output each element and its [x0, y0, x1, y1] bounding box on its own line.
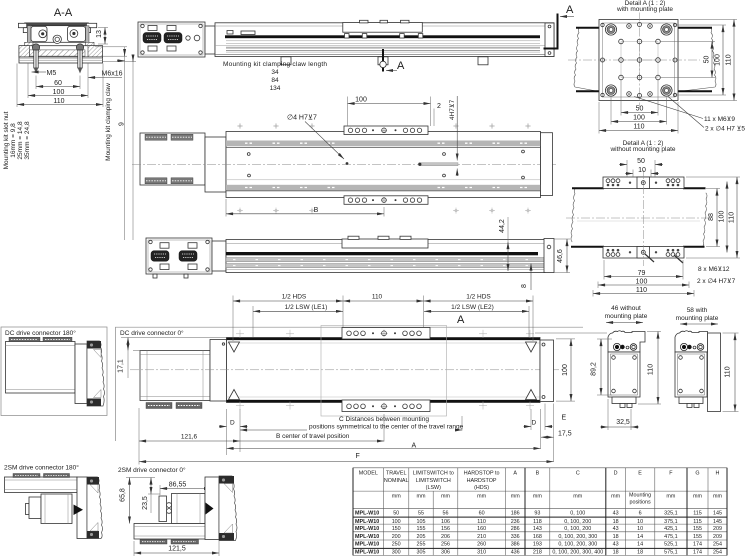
svg-text:110: 110 [477, 519, 486, 525]
svg-text:Mounting kit slot nut: Mounting kit slot nut [3, 111, 10, 169]
svg-text:43: 43 [613, 526, 619, 532]
svg-text:100: 100 [53, 89, 65, 96]
svg-text:55: 55 [418, 511, 424, 517]
svg-text:A: A [412, 442, 417, 449]
svg-text:M6x16: M6x16 [102, 71, 123, 78]
svg-text:8: 8 [521, 284, 528, 288]
svg-text:10: 10 [637, 526, 643, 532]
svg-text:NOMINAL: NOMINAL [384, 478, 409, 484]
svg-text:110: 110 [726, 54, 733, 65]
svg-text:17,5: 17,5 [558, 431, 572, 438]
svg-text:B: B [536, 471, 540, 477]
svg-text:210: 210 [477, 534, 486, 540]
svg-text:50: 50 [393, 511, 399, 517]
svg-text:525,1: 525,1 [664, 542, 678, 548]
svg-text:209: 209 [713, 526, 722, 532]
svg-text:LIMITSWITCH: LIMITSWITCH [416, 478, 451, 484]
svg-text:mm: mm [511, 493, 520, 499]
svg-text:121,6: 121,6 [181, 433, 198, 440]
svg-text:310: 310 [477, 549, 486, 555]
svg-text:250: 250 [392, 542, 401, 548]
svg-text:D: D [532, 420, 537, 427]
svg-text:50: 50 [636, 106, 644, 113]
svg-text:MPL-W10: MPL-W10 [355, 542, 379, 548]
svg-text:110: 110 [53, 98, 64, 105]
svg-text:150: 150 [392, 526, 401, 532]
svg-text:110: 110 [372, 294, 383, 301]
svg-text:B: B [314, 207, 319, 214]
svg-text:155: 155 [693, 534, 702, 540]
svg-text:0, 100, 200, 300: 0, 100, 200, 300 [558, 534, 597, 540]
svg-text:A: A [457, 314, 465, 326]
svg-text:100: 100 [633, 115, 645, 122]
svg-text:160: 160 [477, 526, 486, 532]
svg-text:MPL-W10: MPL-W10 [355, 534, 379, 540]
svg-text:43: 43 [613, 511, 619, 517]
svg-text:254: 254 [713, 542, 722, 548]
svg-text:C Distances between mountin: C Distances between mounting [339, 416, 429, 423]
svg-text:89,2: 89,2 [591, 362, 598, 376]
svg-text:106: 106 [441, 519, 450, 525]
svg-text:HARDSTOP: HARDSTOP [467, 478, 497, 484]
svg-text:155: 155 [693, 526, 702, 532]
svg-text:168: 168 [533, 534, 542, 540]
svg-text:(HDS): (HDS) [474, 485, 489, 491]
svg-text:1/2 HDS: 1/2 HDS [282, 294, 307, 301]
svg-text:174: 174 [693, 549, 702, 555]
svg-text:0, 100: 0, 100 [570, 511, 585, 517]
svg-text:positions: positions [629, 500, 651, 506]
svg-text:100: 100 [715, 54, 722, 66]
svg-text:100: 100 [355, 97, 367, 104]
svg-text:M5: M5 [47, 70, 57, 77]
svg-text:43: 43 [613, 542, 619, 548]
svg-text:D: D [230, 420, 235, 427]
svg-text:306: 306 [441, 549, 450, 555]
svg-text:115: 115 [693, 519, 702, 525]
svg-text:mm: mm [573, 493, 582, 499]
svg-text:16mm = 9,8: 16mm = 9,8 [10, 123, 17, 158]
svg-text:186: 186 [511, 511, 520, 517]
svg-text:436: 436 [511, 549, 520, 555]
svg-text:100: 100 [392, 519, 401, 525]
svg-text:13: 13 [96, 30, 103, 38]
svg-text:156: 156 [441, 526, 450, 532]
svg-text:336: 336 [511, 534, 520, 540]
svg-text:255: 255 [417, 542, 426, 548]
svg-text:HARDSTOP to: HARDSTOP to [464, 471, 500, 477]
svg-text:DC drive connector 0°: DC drive connector 0° [120, 329, 184, 337]
svg-text:2 x ∅4 H7⊻7: 2 x ∅4 H7⊻7 [697, 277, 736, 285]
svg-text:mm: mm [441, 493, 450, 499]
svg-text:88: 88 [708, 213, 715, 221]
svg-text:2SM drive connector 180°: 2SM drive connector 180° [4, 464, 79, 472]
svg-text:mm: mm [392, 493, 401, 499]
svg-text:mm: mm [611, 493, 620, 499]
svg-text:110: 110 [633, 124, 644, 131]
svg-text:260: 260 [477, 542, 486, 548]
svg-text:MPL-W10: MPL-W10 [355, 549, 379, 555]
svg-text:8 x M6⊻12: 8 x M6⊻12 [698, 265, 730, 273]
svg-text:mm: mm [533, 493, 542, 499]
svg-text:(LSW): (LSW) [426, 485, 441, 491]
svg-text:Mounting: Mounting [629, 492, 651, 498]
svg-text:386: 386 [511, 542, 520, 548]
svg-text:100: 100 [562, 364, 569, 376]
svg-text:305: 305 [417, 549, 426, 555]
svg-text:205: 205 [417, 534, 426, 540]
svg-text:200: 200 [392, 534, 401, 540]
svg-text:110: 110 [636, 287, 647, 294]
svg-text:44,2: 44,2 [499, 219, 506, 233]
svg-text:475,1: 475,1 [664, 534, 678, 540]
svg-text:1/2 LSW (LE2): 1/2 LSW (LE2) [451, 304, 494, 311]
svg-text:0, 100, 200: 0, 100, 200 [564, 526, 591, 532]
svg-text:174: 174 [693, 542, 702, 548]
svg-text:56: 56 [443, 511, 449, 517]
svg-text:E: E [638, 471, 642, 477]
svg-text:6: 6 [639, 511, 642, 517]
svg-text:218: 218 [533, 549, 542, 555]
svg-text:H: H [716, 471, 720, 477]
svg-text:575,1: 575,1 [664, 549, 678, 555]
svg-text:300: 300 [392, 549, 401, 555]
svg-text:145: 145 [713, 511, 722, 517]
svg-text:1/2 LSW (LE1): 1/2 LSW (LE1) [285, 304, 328, 311]
svg-text:A: A [566, 4, 574, 16]
svg-text:G: G [695, 471, 699, 477]
svg-text:4H7⊻7: 4H7⊻7 [448, 99, 456, 120]
svg-text:A: A [397, 60, 405, 72]
svg-text:1/2 HDS: 1/2 HDS [466, 294, 491, 301]
svg-text:236: 236 [511, 519, 520, 525]
svg-text:DC drive connector 180°: DC drive connector 180° [5, 329, 76, 337]
svg-text:F: F [356, 453, 360, 460]
svg-text:134: 134 [270, 85, 281, 92]
svg-text:50: 50 [637, 158, 645, 165]
svg-text:206: 206 [441, 534, 450, 540]
svg-text:32,5: 32,5 [616, 419, 630, 426]
svg-text:A: A [513, 471, 517, 477]
svg-text:145: 145 [713, 519, 722, 525]
svg-text:2SM drive connector 0°: 2SM drive connector 0° [118, 466, 186, 474]
svg-text:mm: mm [477, 493, 486, 499]
svg-text:∅4 H7⊻7: ∅4 H7⊻7 [287, 114, 317, 122]
svg-text:121,5: 121,5 [168, 546, 186, 553]
svg-text:Mounting kit clamping claw: Mounting kit clamping claw [105, 83, 112, 161]
svg-text:60: 60 [54, 80, 62, 87]
svg-text:34: 34 [271, 69, 279, 76]
svg-text:110: 110 [725, 366, 732, 377]
svg-text:with mounting plate: with mounting plate [616, 6, 673, 13]
svg-text:mounting plate: mounting plate [676, 315, 719, 322]
svg-text:MPL-W10: MPL-W10 [355, 526, 379, 532]
svg-text:0, 100, 200: 0, 100, 200 [564, 519, 591, 525]
svg-text:60: 60 [479, 511, 485, 517]
svg-text:without mounting plate: without mounting plate [609, 146, 675, 153]
svg-text:positions symmetrical to the c: positions symmetrical to the center of t… [309, 424, 464, 431]
svg-text:425,1: 425,1 [664, 526, 678, 532]
svg-text:256: 256 [441, 542, 450, 548]
svg-text:115: 115 [693, 511, 702, 517]
svg-text:23,5: 23,5 [142, 496, 149, 510]
svg-text:143: 143 [533, 526, 542, 532]
svg-text:mounting plate: mounting plate [605, 313, 648, 320]
svg-text:18: 18 [637, 549, 643, 555]
svg-text:375,1: 375,1 [664, 519, 678, 525]
svg-text:46,6: 46,6 [557, 249, 564, 263]
svg-text:155: 155 [417, 526, 426, 532]
svg-text:MPL-W10: MPL-W10 [355, 519, 379, 525]
svg-text:2 x ∅4 H7 ⊻5: 2 x ∅4 H7 ⊻5 [705, 125, 745, 133]
svg-text:C: C [576, 471, 580, 477]
svg-text:TRAVEL: TRAVEL [386, 471, 407, 477]
svg-text:MPL-W10: MPL-W10 [355, 511, 379, 517]
svg-text:A-A: A-A [54, 7, 73, 19]
svg-text:35mm = 24,8: 35mm = 24,8 [24, 121, 31, 160]
svg-text:105: 105 [417, 519, 426, 525]
svg-text:D: D [614, 471, 618, 477]
svg-text:mm: mm [417, 493, 426, 499]
svg-text:79: 79 [638, 270, 646, 277]
svg-text:118: 118 [533, 519, 542, 525]
svg-text:209: 209 [713, 534, 722, 540]
svg-text:65,8: 65,8 [120, 488, 127, 502]
svg-text:14: 14 [637, 534, 643, 540]
svg-text:46 without: 46 without [611, 305, 641, 312]
svg-text:110: 110 [648, 364, 655, 375]
svg-text:mm: mm [713, 493, 722, 499]
svg-text:MODEL: MODEL [359, 471, 378, 477]
svg-text:17,1: 17,1 [118, 359, 125, 373]
svg-text:18: 18 [613, 549, 619, 555]
svg-text:mm: mm [693, 493, 702, 499]
svg-text:0, 100, 200, 300, 400: 0, 100, 200, 300, 400 [552, 549, 603, 555]
svg-text:325,1: 325,1 [664, 511, 678, 517]
svg-text:25mm = 14,8: 25mm = 14,8 [17, 121, 24, 160]
svg-text:B center of travel position: B center of travel position [276, 433, 350, 440]
svg-text:100: 100 [636, 278, 648, 285]
svg-text:mm: mm [666, 493, 675, 499]
svg-text:193: 193 [533, 542, 542, 548]
svg-text:93: 93 [534, 511, 540, 517]
svg-text:84: 84 [271, 77, 279, 84]
svg-text:100: 100 [719, 211, 726, 223]
svg-text:58 with: 58 with [687, 307, 708, 314]
svg-text:LIMITSWITCH to: LIMITSWITCH to [413, 471, 454, 477]
svg-text:2: 2 [437, 103, 441, 110]
svg-text:110: 110 [729, 212, 736, 223]
svg-text:E: E [562, 415, 567, 422]
svg-text:50: 50 [704, 56, 711, 64]
svg-text:86,55: 86,55 [169, 482, 187, 489]
svg-text:10: 10 [637, 519, 643, 525]
svg-text:254: 254 [713, 549, 722, 555]
svg-text:286: 286 [511, 526, 520, 532]
svg-text:0, 100, 200, 300: 0, 100, 200, 300 [558, 542, 597, 548]
svg-text:18: 18 [613, 519, 619, 525]
svg-text:11 x M6⊻9: 11 x M6⊻9 [704, 115, 735, 123]
svg-text:18: 18 [613, 534, 619, 540]
svg-text:Mounting kit clamping claw len: Mounting kit clamping claw length [223, 61, 327, 68]
svg-text:14: 14 [637, 542, 643, 548]
svg-text:10: 10 [638, 167, 646, 174]
